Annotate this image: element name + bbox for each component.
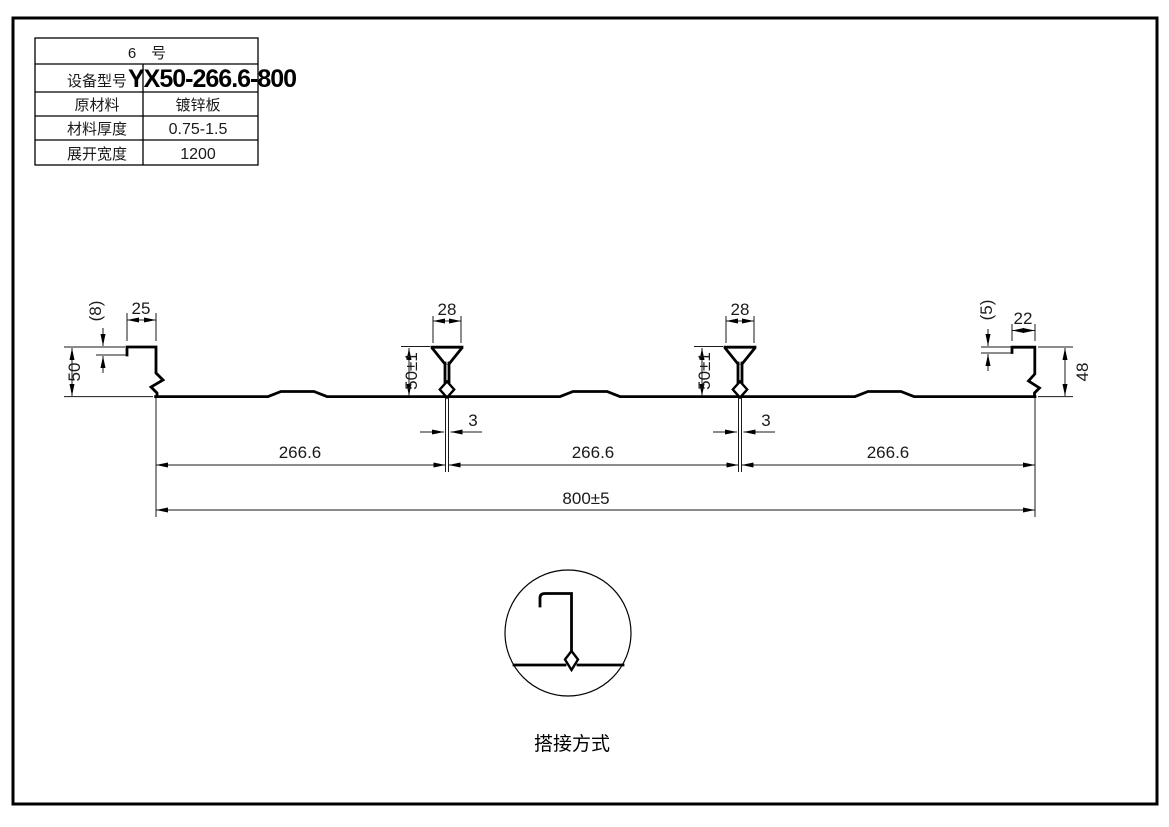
detail-caption: 搭接方式	[534, 733, 610, 755]
detail-circle	[505, 570, 631, 696]
spec-table: 6 号 设备型号 YX50-266.6-800 原材料 镀锌板 材料厚度 0.7…	[35, 38, 296, 165]
profile-rib-2	[725, 347, 755, 397]
dim-right-height: 48	[1073, 363, 1092, 382]
label-device-model: 设备型号	[67, 73, 127, 90]
dim-left-lip: (8)	[86, 301, 105, 322]
dim-right-lip: (5)	[977, 300, 996, 321]
dim-rib1-height: 50±1	[402, 352, 421, 390]
dim-left-height: 50	[65, 363, 84, 382]
dim-rib2-width: 28	[731, 300, 750, 319]
profile-section	[127, 347, 1040, 398]
cad-drawing: 6 号 设备型号 YX50-266.6-800 原材料 镀锌板 材料厚度 0.7…	[0, 0, 1169, 827]
rib-2-lock-diamond	[733, 382, 747, 398]
dim-left-flange: 25	[132, 299, 151, 318]
dim-rib2-height: 50±1	[695, 352, 714, 390]
detail-web-hook	[540, 594, 572, 653]
dim-overall-width: 800±5	[562, 489, 609, 508]
dim-rib1-stem: 3	[468, 411, 477, 430]
dim-rib1-extension-lines	[401, 316, 461, 472]
dim-right-flange: 22	[1014, 309, 1033, 328]
profile-pan-2	[449, 392, 739, 397]
dim-rib2-extension-lines	[694, 316, 754, 472]
profile-pan-1	[156, 392, 446, 397]
rib-1-lock-diamond	[440, 382, 454, 398]
dim-pitch-1: 266.6	[279, 443, 322, 462]
label-raw-material: 原材料	[74, 97, 119, 114]
dim-rib1-width: 28	[438, 300, 457, 319]
table-title: 6 号	[128, 45, 166, 62]
dim-pitch-3: 266.6	[867, 443, 910, 462]
dim-pitch-2: 266.6	[572, 443, 615, 462]
profile-pan-3	[742, 392, 1035, 397]
label-unfolded-width: 展开宽度	[67, 146, 127, 163]
profile-rib-1	[432, 347, 462, 397]
value-device-model: YX50-266.6-800	[128, 65, 296, 93]
profile-right-edge	[1012, 347, 1040, 396]
cad-sheet: 6 号 设备型号 YX50-266.6-800 原材料 镀锌板 材料厚度 0.7…	[0, 0, 1169, 827]
detail-lock-diamond	[565, 651, 578, 670]
dim-left-extension-lines	[64, 313, 156, 397]
label-material-thickness: 材料厚度	[67, 121, 127, 138]
rib-2-funnel	[725, 347, 755, 382]
dim-right-extension-lines	[981, 324, 1073, 397]
value-material-thickness: 0.75-1.5	[169, 121, 228, 138]
dim-rib2-stem: 3	[761, 411, 770, 430]
profile-left-edge	[127, 347, 163, 397]
dimensions: (8) 25 50 28 50±1 3 28 50±1 3	[64, 299, 1092, 517]
rib-1-funnel	[432, 347, 462, 382]
value-raw-material: 镀锌板	[175, 96, 220, 114]
overlap-detail: 搭接方式	[505, 570, 631, 755]
value-unfolded-width: 1200	[180, 146, 216, 163]
dim-bottom-group: 266.6 266.6 266.6 800±5	[156, 398, 1035, 517]
